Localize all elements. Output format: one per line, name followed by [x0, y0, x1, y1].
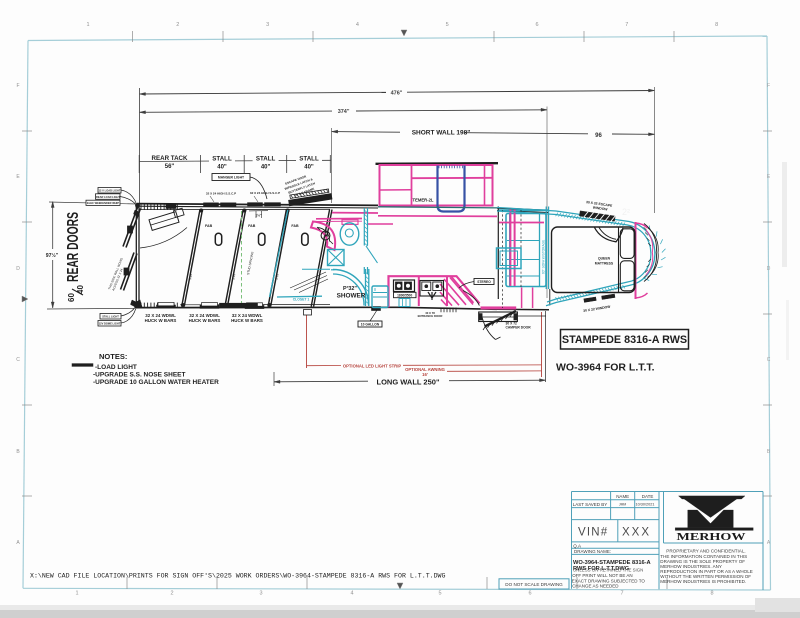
svg-text:C: C — [16, 357, 20, 363]
svg-text:7: 7 — [620, 591, 623, 597]
svg-text:HUCK W BARS: HUCK W BARS — [145, 318, 177, 323]
svg-text:476": 476" — [391, 90, 403, 96]
svg-text:5: 5 — [438, 591, 441, 597]
svg-text:SHORT WALL 198": SHORT WALL 198" — [412, 129, 471, 136]
svg-text:FAB: FAB — [205, 224, 213, 228]
svg-text:8: 8 — [715, 22, 718, 28]
svg-text:MATTRESS: MATTRESS — [595, 262, 614, 266]
svg-text:-UPGRADE 10 GALLON WATER HEATE: -UPGRADE 10 GALLON WATER HEATER — [93, 379, 219, 386]
svg-text:60" SOFA W/STORAGE: 60" SOFA W/STORAGE — [542, 240, 546, 274]
svg-text:WO-3964-STAMPEDE 8316-A: WO-3964-STAMPEDE 8316-A — [573, 560, 651, 566]
svg-text:STALL: STALL — [256, 155, 276, 162]
svg-text:-LOAD LIGHT: -LOAD LIGHT — [95, 364, 137, 371]
svg-text:HUCK W BARS: HUCK W BARS — [189, 318, 221, 323]
svg-text:96: 96 — [595, 133, 602, 139]
svg-text:MANGER LIGHT: MANGER LIGHT — [218, 176, 245, 180]
svg-text:CAMPER DOOR: CAMPER DOOR — [506, 326, 532, 330]
svg-text:1: 1 — [75, 591, 78, 597]
svg-text:97½": 97½" — [46, 252, 59, 259]
svg-text:NOTES:: NOTES: — [99, 352, 127, 361]
svg-text:4: 4 — [356, 22, 359, 28]
svg-text:C: C — [767, 357, 771, 363]
svg-text:UNLESS ON RETAINED THE SIGN: UNLESS ON RETAINED THE SIGN — [573, 568, 643, 573]
svg-text:6: 6 — [528, 591, 531, 597]
svg-text:X:\NEW CAD FILE LOCATION\PRINT: X:\NEW CAD FILE LOCATION\PRINTS FOR SIGN… — [30, 573, 446, 580]
svg-text:REAR LOAD LIGHT: REAR LOAD LIGHT — [96, 195, 120, 199]
svg-text:56": 56" — [165, 164, 175, 170]
svg-text:2: 2 — [176, 22, 179, 28]
svg-text:FAB: FAB — [291, 224, 299, 228]
svg-text:40": 40" — [261, 164, 271, 170]
svg-text:NAME: NAME — [616, 494, 629, 499]
svg-text:HUCK W BARS: HUCK W BARS — [231, 318, 263, 323]
svg-text:STALL: STALL — [212, 155, 232, 162]
svg-text:STALL: STALL — [299, 155, 319, 162]
svg-text:STALL LIGHT: STALL LIGHT — [102, 315, 119, 319]
svg-text:8: 8 — [710, 591, 713, 597]
svg-text:16': 16' — [422, 372, 428, 377]
svg-text:REAR DOORS: REAR DOORS — [65, 212, 82, 282]
svg-text:VIN#: VIN# — [578, 526, 608, 538]
svg-text:40": 40" — [304, 164, 314, 170]
svg-text:STAMPEDE 8316-A RWS: STAMPEDE 8316-A RWS — [562, 334, 687, 346]
svg-text:LAST SAVED BY: LAST SAVED BY — [573, 502, 608, 507]
svg-text:1800/5500: 1800/5500 — [397, 294, 412, 298]
svg-text:40": 40" — [217, 164, 227, 170]
svg-text:TEMER-2L: TEMER-2L — [413, 198, 434, 203]
svg-text:D: D — [16, 266, 20, 272]
svg-text:2: 2 — [170, 591, 173, 597]
svg-text:WO-3964 FOR L.T.T.: WO-3964 FOR L.T.T. — [556, 362, 655, 374]
svg-text:10 GALLON: 10 GALLON — [361, 323, 380, 327]
svg-text:2²: 2² — [622, 207, 630, 217]
svg-text:4: 4 — [350, 591, 353, 597]
svg-text:32 X 24 HIGH S.S.C.P: 32 X 24 HIGH S.S.C.P — [206, 192, 236, 196]
svg-text:FAB: FAB — [248, 224, 256, 228]
svg-text:60: 60 — [67, 293, 76, 302]
svg-text:PROPRIETARY AND CONFIDENTIAL.: PROPRIETARY AND CONFIDENTIAL. — [666, 548, 745, 553]
svg-text:DO NOT SCALE DRAWING: DO NOT SCALE DRAWING — [505, 582, 563, 587]
svg-text:P³32": P³32" — [343, 286, 357, 292]
svg-text:374": 374" — [338, 109, 350, 115]
svg-text:OFF PRINT WILL NOT BE AN: OFF PRINT WILL NOT BE AN — [572, 573, 632, 578]
svg-text:F: F — [16, 83, 19, 89]
svg-text:-UPGRADE S.S. NOSE SHEET: -UPGRADE S.S. NOSE SHEET — [93, 371, 185, 378]
svg-text:12V DOME LIGHT: 12V DOME LIGHT — [99, 322, 121, 326]
svg-text:5: 5 — [446, 22, 449, 28]
svg-text:JMM: JMM — [619, 502, 626, 506]
svg-text:LONG WALL 250": LONG WALL 250" — [376, 378, 439, 387]
svg-text:3: 3 — [266, 22, 269, 28]
svg-text:ENTRANCE DOOR: ENTRANCE DOOR — [418, 314, 443, 318]
svg-text:3: 3 — [259, 591, 262, 597]
svg-text:REAR TACK: REAR TACK — [152, 155, 189, 162]
svg-text:12 V LOAD LIGHT: 12 V LOAD LIGHT — [99, 189, 121, 193]
svg-text:DRAWING NAME:: DRAWING NAME: — [574, 549, 611, 554]
svg-text:CHANGE AS NEEDED: CHANGE AS NEEDED — [572, 583, 619, 588]
svg-text:STEREO: STEREO — [477, 280, 491, 284]
svg-text:ELEC WEEKENDER WHIP: ELEC WEEKENDER WHIP — [87, 201, 119, 205]
svg-text:SHOWER: SHOWER — [337, 293, 366, 300]
svg-text:Q.A: Q.A — [573, 543, 581, 548]
svg-text:6: 6 — [535, 22, 538, 28]
svg-text:F: F — [767, 83, 770, 89]
svg-text:DATE: DATE — [642, 494, 654, 499]
svg-text:MERHOW: MERHOW — [677, 531, 746, 543]
svg-text:1: 1 — [86, 22, 89, 28]
svg-text:CLOSET 1: CLOSET 1 — [293, 298, 310, 302]
svg-text:1½": 1½" — [255, 214, 262, 218]
svg-text:OPTIONAL LED LIGHT STRIP: OPTIONAL LED LIGHT STRIP — [343, 363, 402, 368]
svg-text:7: 7 — [625, 22, 628, 28]
svg-text:10/30/2021: 10/30/2021 — [635, 503, 654, 507]
svg-text:MERHOW INDUSTRIES IS PROHIBITE: MERHOW INDUSTRIES IS PROHIBITED. — [660, 579, 746, 584]
svg-text:40: 40 — [76, 285, 85, 294]
svg-text:QUEEN: QUEEN — [598, 257, 611, 261]
svg-text:D: D — [767, 266, 771, 272]
svg-text:XXX: XXX — [622, 526, 651, 538]
